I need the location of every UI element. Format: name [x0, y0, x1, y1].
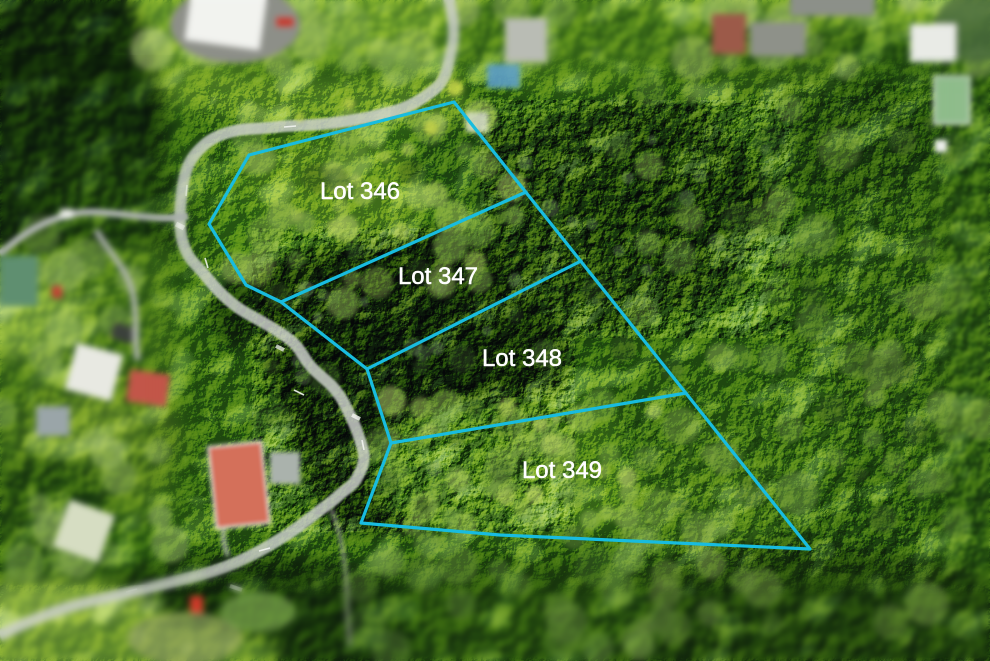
- svg-text:Lot 346: Lot 346: [320, 178, 400, 205]
- svg-text:Lot 349: Lot 349: [522, 457, 602, 484]
- svg-text:Lot 347: Lot 347: [398, 263, 478, 290]
- svg-text:Lot 348: Lot 348: [482, 345, 562, 372]
